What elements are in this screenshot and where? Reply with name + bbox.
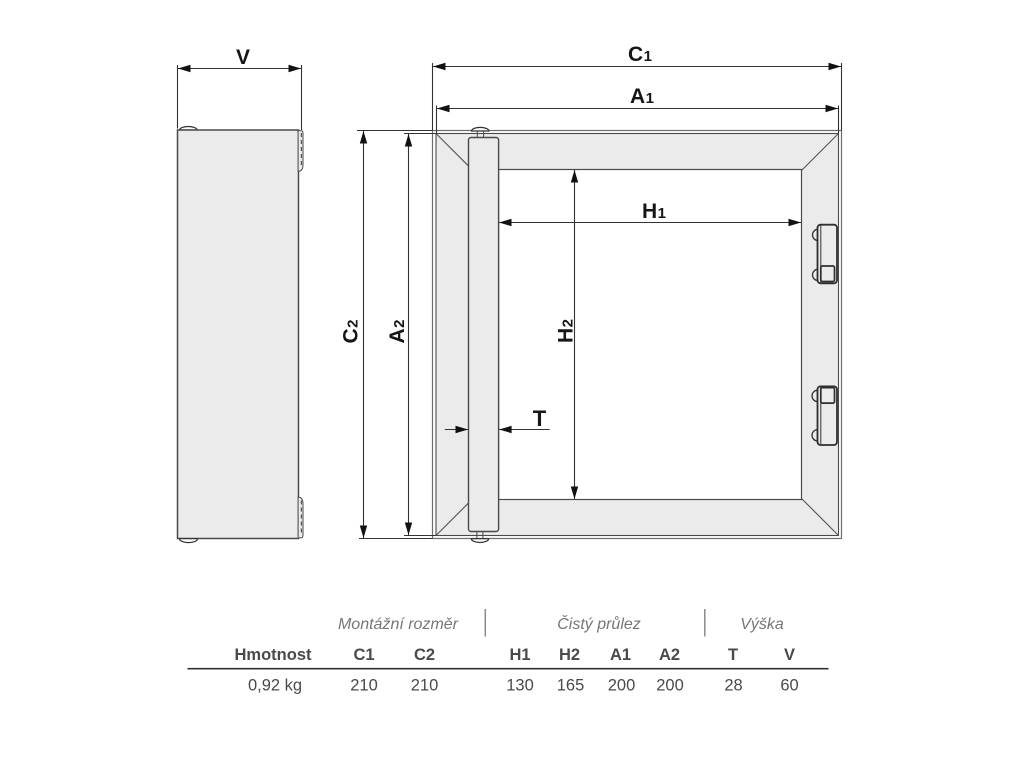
svg-text:200: 200 xyxy=(608,677,636,695)
svg-text:H2: H2 xyxy=(559,646,580,664)
svg-text:0,92 kg: 0,92 kg xyxy=(248,677,302,695)
svg-text:200: 200 xyxy=(656,677,684,695)
svg-text:Hmotnost: Hmotnost xyxy=(235,646,312,664)
svg-text:C1: C1 xyxy=(628,43,652,66)
svg-text:V: V xyxy=(236,46,250,69)
svg-text:Výška: Výška xyxy=(740,616,784,633)
svg-text:T: T xyxy=(728,646,738,664)
svg-text:A2: A2 xyxy=(386,319,409,343)
svg-text:165: 165 xyxy=(557,677,585,695)
svg-text:C1: C1 xyxy=(353,646,374,664)
svg-text:28: 28 xyxy=(724,677,742,695)
svg-text:Čistý průlez: Čistý průlez xyxy=(557,614,641,633)
svg-text:A1: A1 xyxy=(610,646,631,664)
svg-text:A1: A1 xyxy=(630,85,654,108)
svg-text:130: 130 xyxy=(506,677,534,695)
svg-text:C2: C2 xyxy=(414,646,435,664)
svg-text:A2: A2 xyxy=(659,646,680,664)
svg-text:H1: H1 xyxy=(509,646,530,664)
svg-text:60: 60 xyxy=(780,677,798,695)
svg-text:210: 210 xyxy=(411,677,439,695)
svg-text:C2: C2 xyxy=(340,319,363,343)
svg-text:T: T xyxy=(533,406,547,431)
svg-text:210: 210 xyxy=(350,677,378,695)
svg-text:V: V xyxy=(784,646,795,664)
svg-text:Montážní rozměr: Montážní rozměr xyxy=(338,616,459,633)
